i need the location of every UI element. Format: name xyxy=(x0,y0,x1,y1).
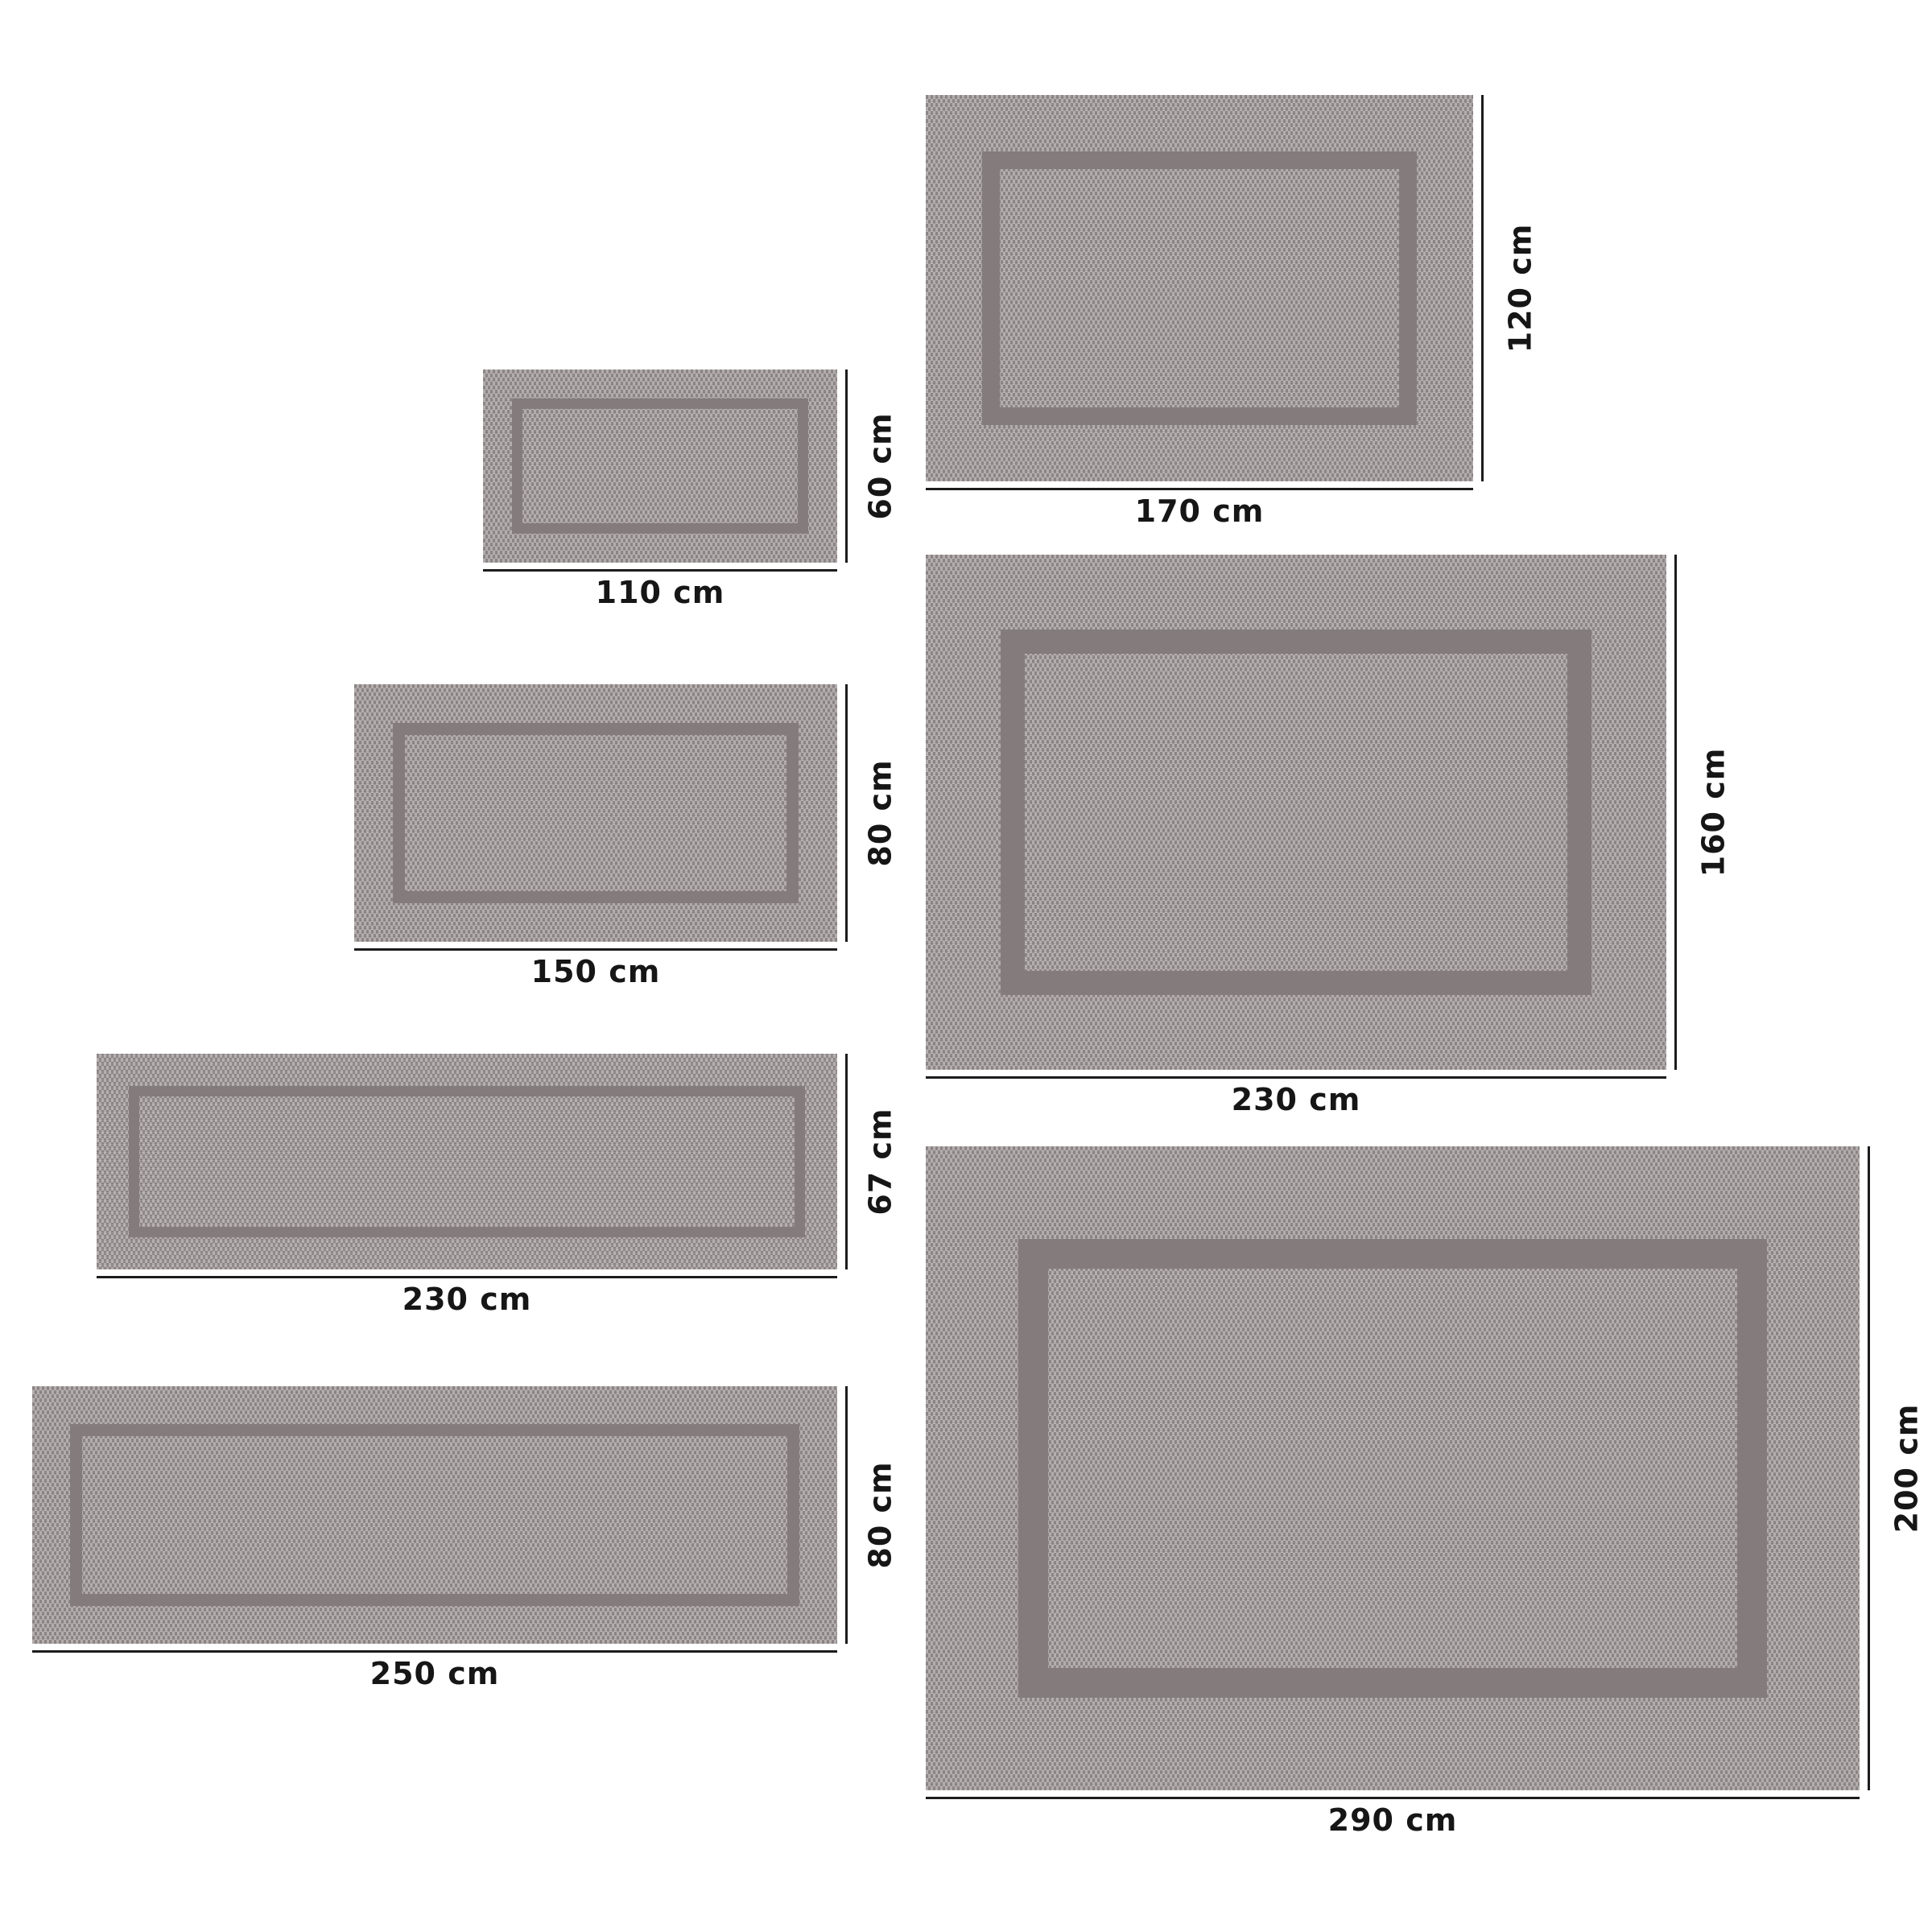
rug-inner-border xyxy=(129,1086,805,1237)
rug-290x200 xyxy=(926,1146,1860,1790)
height-label-text: 200 cm xyxy=(1889,1404,1924,1534)
rug-inner-border xyxy=(70,1424,799,1606)
width-dimension-line xyxy=(926,488,1473,490)
height-dimension-line xyxy=(845,1054,848,1269)
width-dimension-line xyxy=(97,1276,837,1278)
rug-inner-border xyxy=(393,723,799,903)
rug-inner-border xyxy=(512,398,808,534)
height-label: 120 cm xyxy=(1488,95,1552,481)
height-dimension-line xyxy=(845,684,848,942)
height-label: 80 cm xyxy=(852,1386,910,1644)
height-dimension-line xyxy=(1868,1146,1870,1790)
rug-size-chart: 60 cm 110 cm 80 cm 150 cm 67 cm 230 cm 8… xyxy=(0,0,1932,1932)
rug-230x160 xyxy=(926,555,1666,1070)
rug-230x67 xyxy=(97,1054,837,1269)
rug-inner-border xyxy=(982,151,1417,425)
height-dimension-line xyxy=(1674,555,1677,1070)
width-label: 150 cm xyxy=(354,953,837,990)
height-label: 200 cm xyxy=(1874,1146,1932,1790)
rug-150x80 xyxy=(354,684,837,942)
rug-110x60 xyxy=(483,369,837,563)
height-label: 160 cm xyxy=(1681,555,1745,1070)
height-dimension-line xyxy=(845,1386,848,1644)
width-dimension-line xyxy=(483,569,837,572)
width-label: 110 cm xyxy=(483,574,837,611)
rug-170x120 xyxy=(926,95,1473,481)
width-dimension-line xyxy=(32,1650,837,1653)
rug-250x80 xyxy=(32,1386,837,1644)
width-label: 170 cm xyxy=(926,493,1473,530)
height-label-text: 160 cm xyxy=(1695,748,1731,877)
height-label-text: 67 cm xyxy=(863,1108,898,1215)
height-label-text: 60 cm xyxy=(863,412,898,519)
width-label: 250 cm xyxy=(32,1655,837,1692)
height-label-text: 120 cm xyxy=(1502,224,1538,353)
width-label: 230 cm xyxy=(97,1281,837,1318)
rug-inner-border xyxy=(1001,630,1591,995)
height-label: 67 cm xyxy=(852,1054,910,1269)
height-label-text: 80 cm xyxy=(863,1461,898,1568)
width-dimension-line xyxy=(354,948,837,951)
rug-inner-border xyxy=(1018,1239,1767,1698)
height-label: 60 cm xyxy=(852,369,910,563)
height-label: 80 cm xyxy=(852,684,910,942)
height-dimension-line xyxy=(845,369,848,563)
width-label: 230 cm xyxy=(926,1081,1666,1118)
width-label: 290 cm xyxy=(926,1802,1860,1839)
width-dimension-line xyxy=(926,1076,1666,1079)
height-dimension-line xyxy=(1481,95,1484,481)
height-label-text: 80 cm xyxy=(863,759,898,866)
width-dimension-line xyxy=(926,1797,1860,1799)
